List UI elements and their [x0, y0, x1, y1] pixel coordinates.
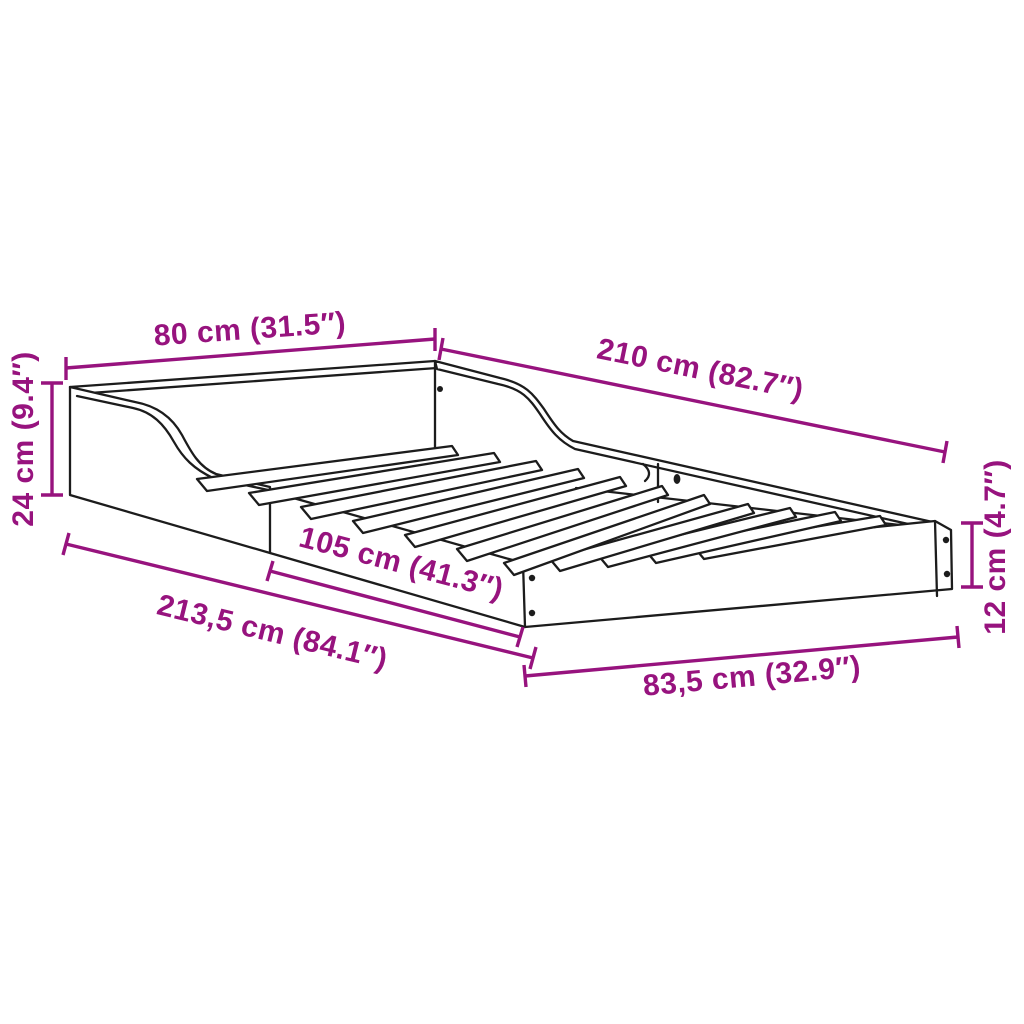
- dimension-tick: [439, 338, 443, 360]
- bolt-icon: [529, 575, 535, 581]
- bolt-icon: [437, 386, 443, 392]
- dimension-label-foot-width: 83,5 cm (32.9″): [641, 650, 862, 703]
- dimension-head-width: 80 cm (31.5″): [66, 306, 435, 380]
- bolt-icon: [944, 571, 950, 577]
- dimension-label-side-length: 210 cm (82.7″): [594, 332, 806, 406]
- bed-frame-dimension-diagram: 80 cm (31.5″) 210 cm (82.7″) 24 cm (9.4″…: [0, 0, 1024, 1024]
- dimension-tick: [943, 441, 947, 463]
- dimension-tick: [524, 665, 526, 687]
- dimension-label-head-height: 24 cm (9.4″): [7, 351, 40, 526]
- dimension-label-mid-length: 105 cm (41.3″): [296, 521, 507, 607]
- dimension-label-total-length: 213,5 cm (84.1″): [154, 589, 391, 677]
- dimension-head-height: 24 cm (9.4″): [7, 351, 63, 526]
- dimension-tick: [957, 626, 959, 648]
- headboard-top-edge-inner: [76, 368, 437, 394]
- bolt-icon: [529, 610, 535, 616]
- bolt-icon: [674, 474, 681, 484]
- near-side-panel: [70, 387, 270, 553]
- dimension-side-length: 210 cm (82.7″): [439, 332, 947, 463]
- dimension-label-foot-height: 12 cm (4.7″): [979, 459, 1012, 634]
- diagram-canvas: 80 cm (31.5″) 210 cm (82.7″) 24 cm (9.4″…: [0, 0, 1024, 1024]
- dimension-foot-width: 83,5 cm (32.9″): [524, 626, 959, 703]
- dimension-label-head-width: 80 cm (31.5″): [153, 306, 347, 352]
- dimension-foot-height: 12 cm (4.7″): [961, 459, 1012, 634]
- bed-frame-drawing: [70, 361, 952, 627]
- bolt-icon: [943, 537, 949, 543]
